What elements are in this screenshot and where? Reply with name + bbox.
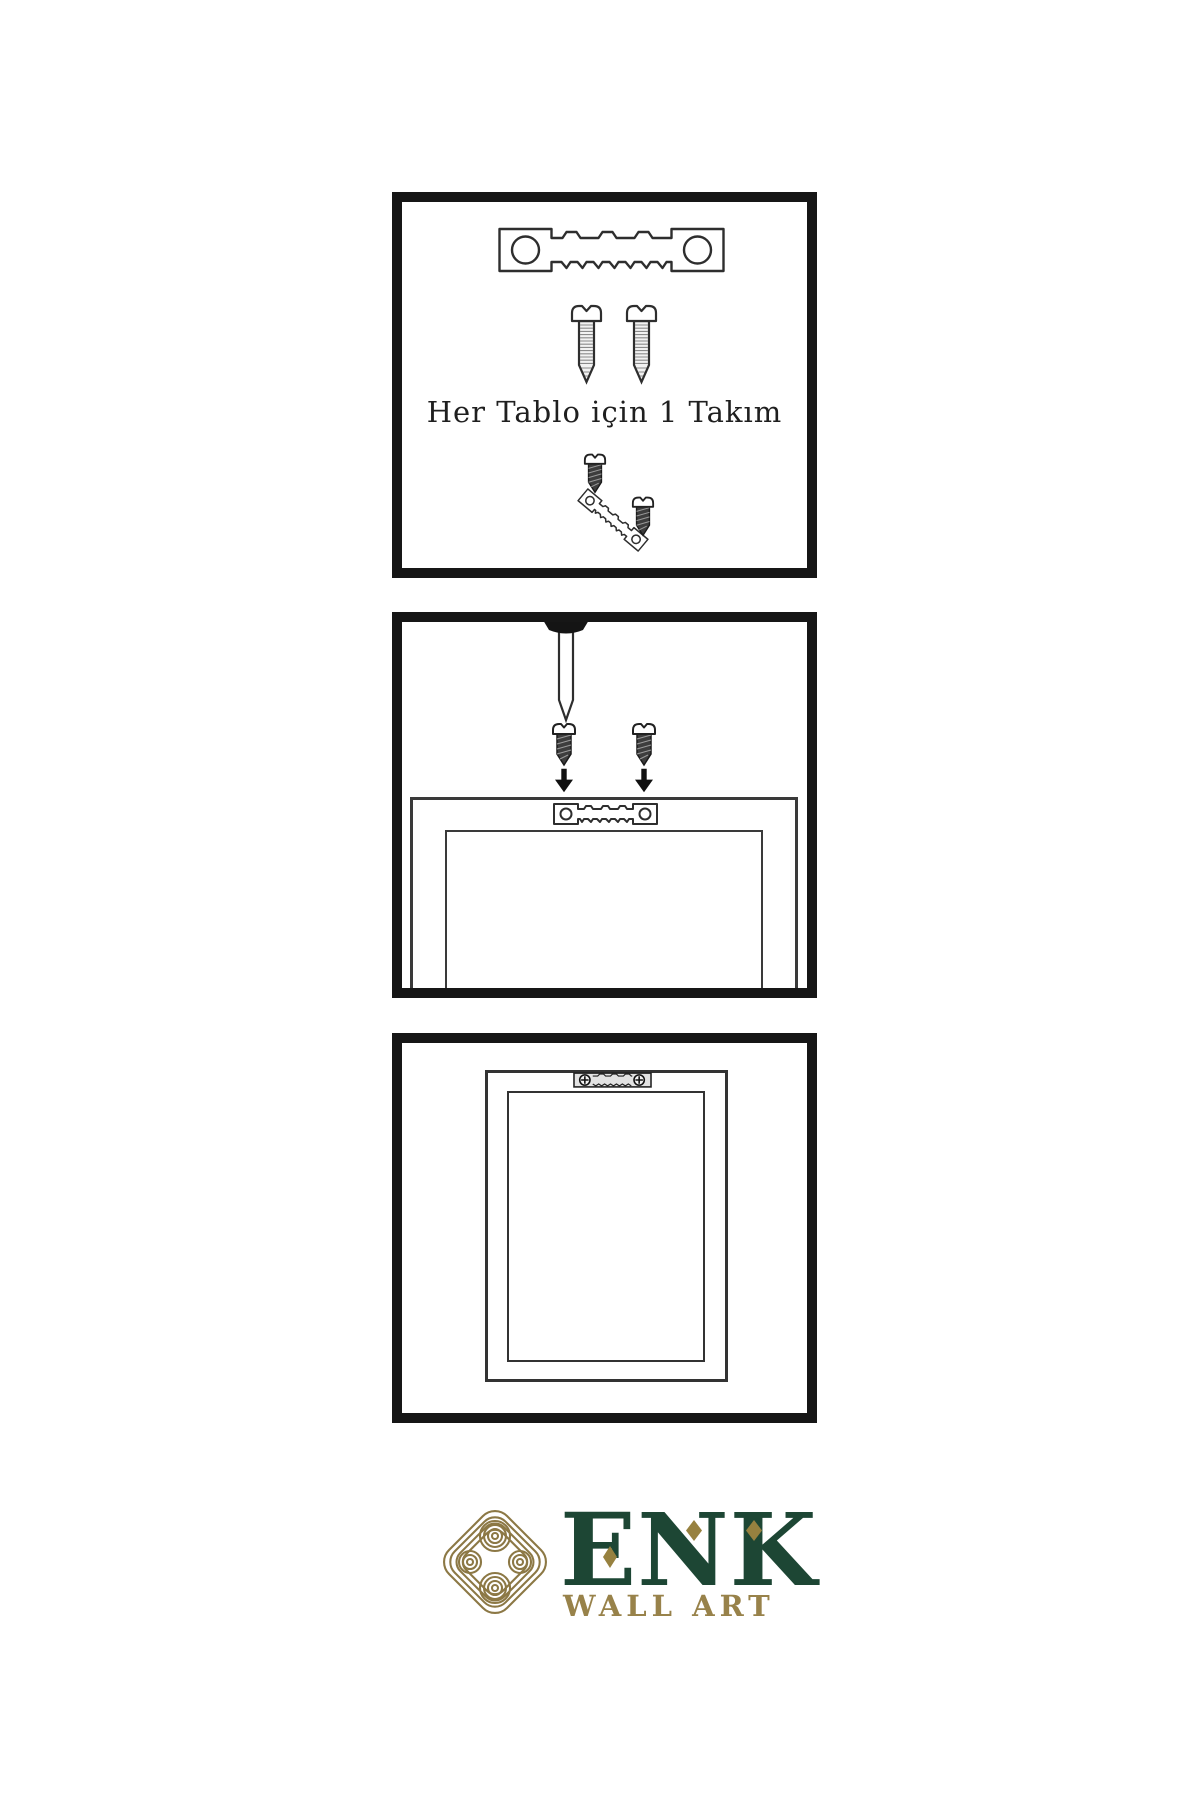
kit-caption: Her Tablo için 1 Takım (402, 395, 807, 429)
screw-icon (569, 302, 604, 386)
dark-screw-icon (631, 493, 655, 539)
panel-hang-frame (392, 1033, 817, 1423)
frame-back-inner (445, 830, 763, 998)
panel-attach-hanger (392, 612, 817, 998)
hung-frame-inner (507, 1091, 705, 1362)
arrow-down-icon (635, 768, 653, 793)
dark-screw-icon (551, 721, 577, 767)
sawtooth-hanger-screwed-icon (573, 1070, 652, 1090)
brand-subtitle: WALL ART (563, 1589, 775, 1623)
arrow-down-icon (555, 768, 573, 793)
dark-screw-icon (631, 721, 657, 767)
nail-icon (543, 620, 589, 724)
sawtooth-hanger-icon (495, 222, 728, 278)
panel-hardware-kit: Her Tablo için 1 Takım (392, 192, 817, 578)
sawtooth-hanger-mounted-icon (553, 801, 658, 827)
enk-knot-logo-icon (437, 1494, 553, 1630)
screw-icon (624, 302, 659, 386)
brand-wordmark: ENK (560, 1500, 818, 1600)
